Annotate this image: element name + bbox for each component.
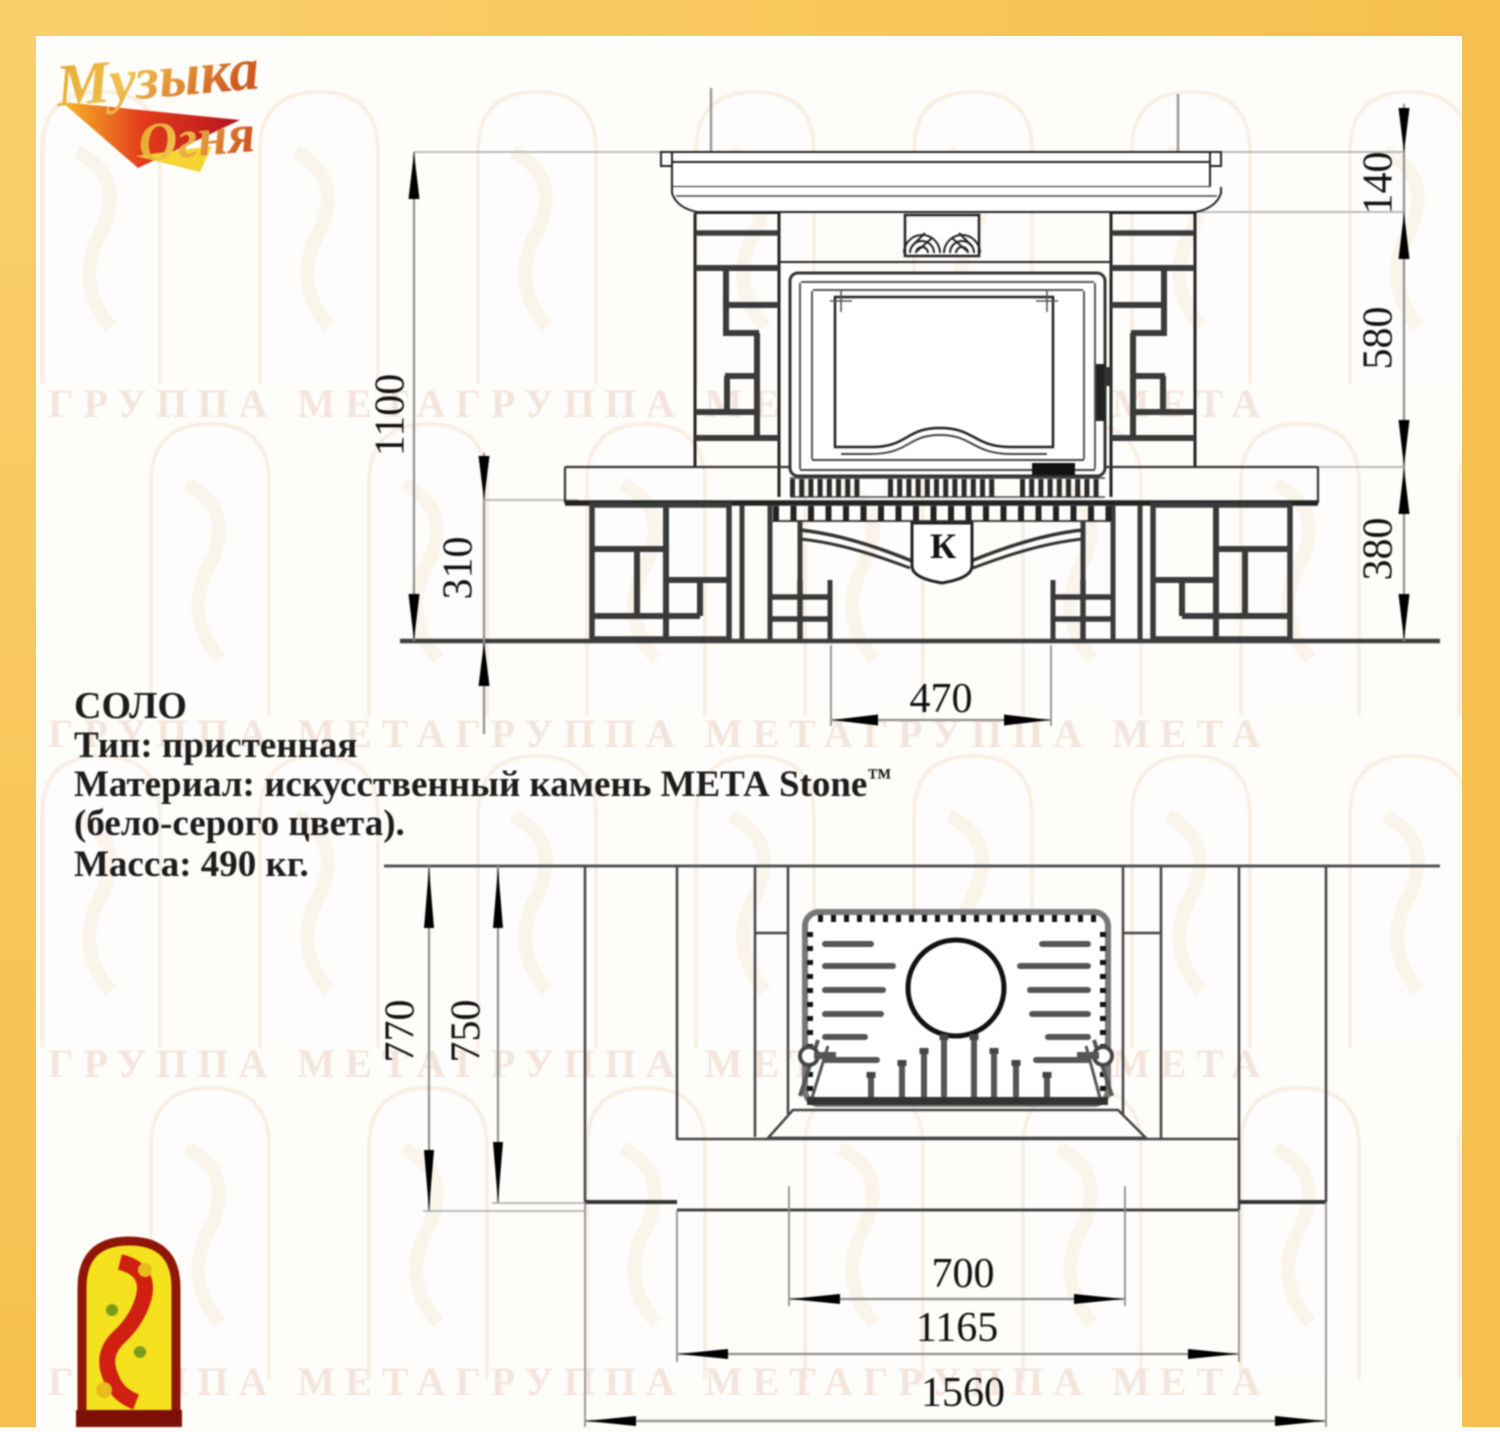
svg-text:750: 750 (444, 1000, 490, 1063)
svg-text:К: К (930, 526, 956, 566)
svg-text:380: 380 (1356, 518, 1402, 581)
svg-text:1100: 1100 (368, 374, 414, 456)
svg-text:1165: 1165 (916, 1305, 998, 1351)
svg-text:770: 770 (378, 1000, 424, 1063)
svg-text:700: 700 (932, 1251, 995, 1297)
svg-text:Материал: искусственный камень: Материал: искусственный камень МЕТА Ston… (74, 764, 891, 805)
svg-text:(бело-серого цвета).: (бело-серого цвета). (74, 803, 405, 844)
svg-text:СОЛО: СОЛО (74, 685, 187, 727)
svg-text:580: 580 (1356, 307, 1402, 370)
svg-text:470: 470 (910, 676, 973, 722)
svg-text:1560: 1560 (921, 1370, 1005, 1416)
svg-text:310: 310 (436, 537, 482, 600)
svg-text:140: 140 (1356, 152, 1402, 215)
svg-text:Тип: пристенная: Тип: пристенная (74, 725, 357, 766)
svg-text:Огня: Огня (136, 103, 258, 173)
svg-text:ГРУППА МЕТАГРУППА МЕТАГРУППА М: ГРУППА МЕТАГРУППА МЕТАГРУППА МЕТА (48, 1359, 1270, 1404)
svg-text:Масса: 490 кг.: Масса: 490 кг. (74, 844, 309, 885)
